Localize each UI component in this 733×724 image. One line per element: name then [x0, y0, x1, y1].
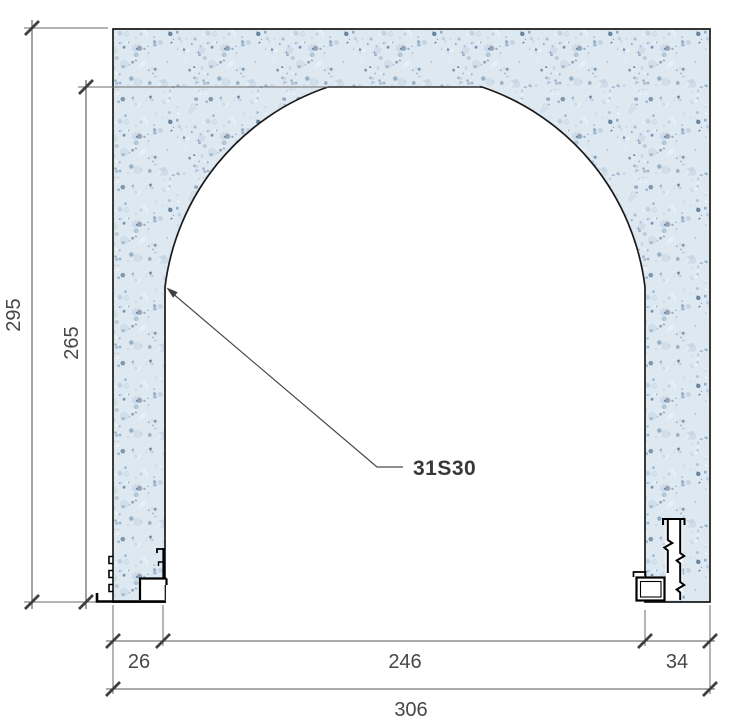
callout-label: 31S30	[413, 457, 476, 480]
technical-drawing: 295 265 26 246 34 306 31S30	[0, 0, 733, 724]
dim-label-right-wall: 34	[666, 651, 688, 673]
dim-label-overall-width: 306	[394, 699, 427, 721]
track-notch-left	[140, 578, 166, 601]
wall-hatch-region	[113, 29, 710, 602]
callout: 31S30	[167, 288, 477, 481]
dim-label-opening-height: 265	[61, 326, 83, 359]
dim-label-left-wall: 26	[128, 651, 150, 673]
dim-label-opening-width: 246	[388, 651, 421, 673]
dimension-labels: 295 265 26 246 34 306	[3, 298, 688, 721]
wall-section	[113, 29, 710, 602]
dim-label-overall-height: 295	[3, 298, 25, 331]
callout-leader-line	[171, 292, 403, 467]
